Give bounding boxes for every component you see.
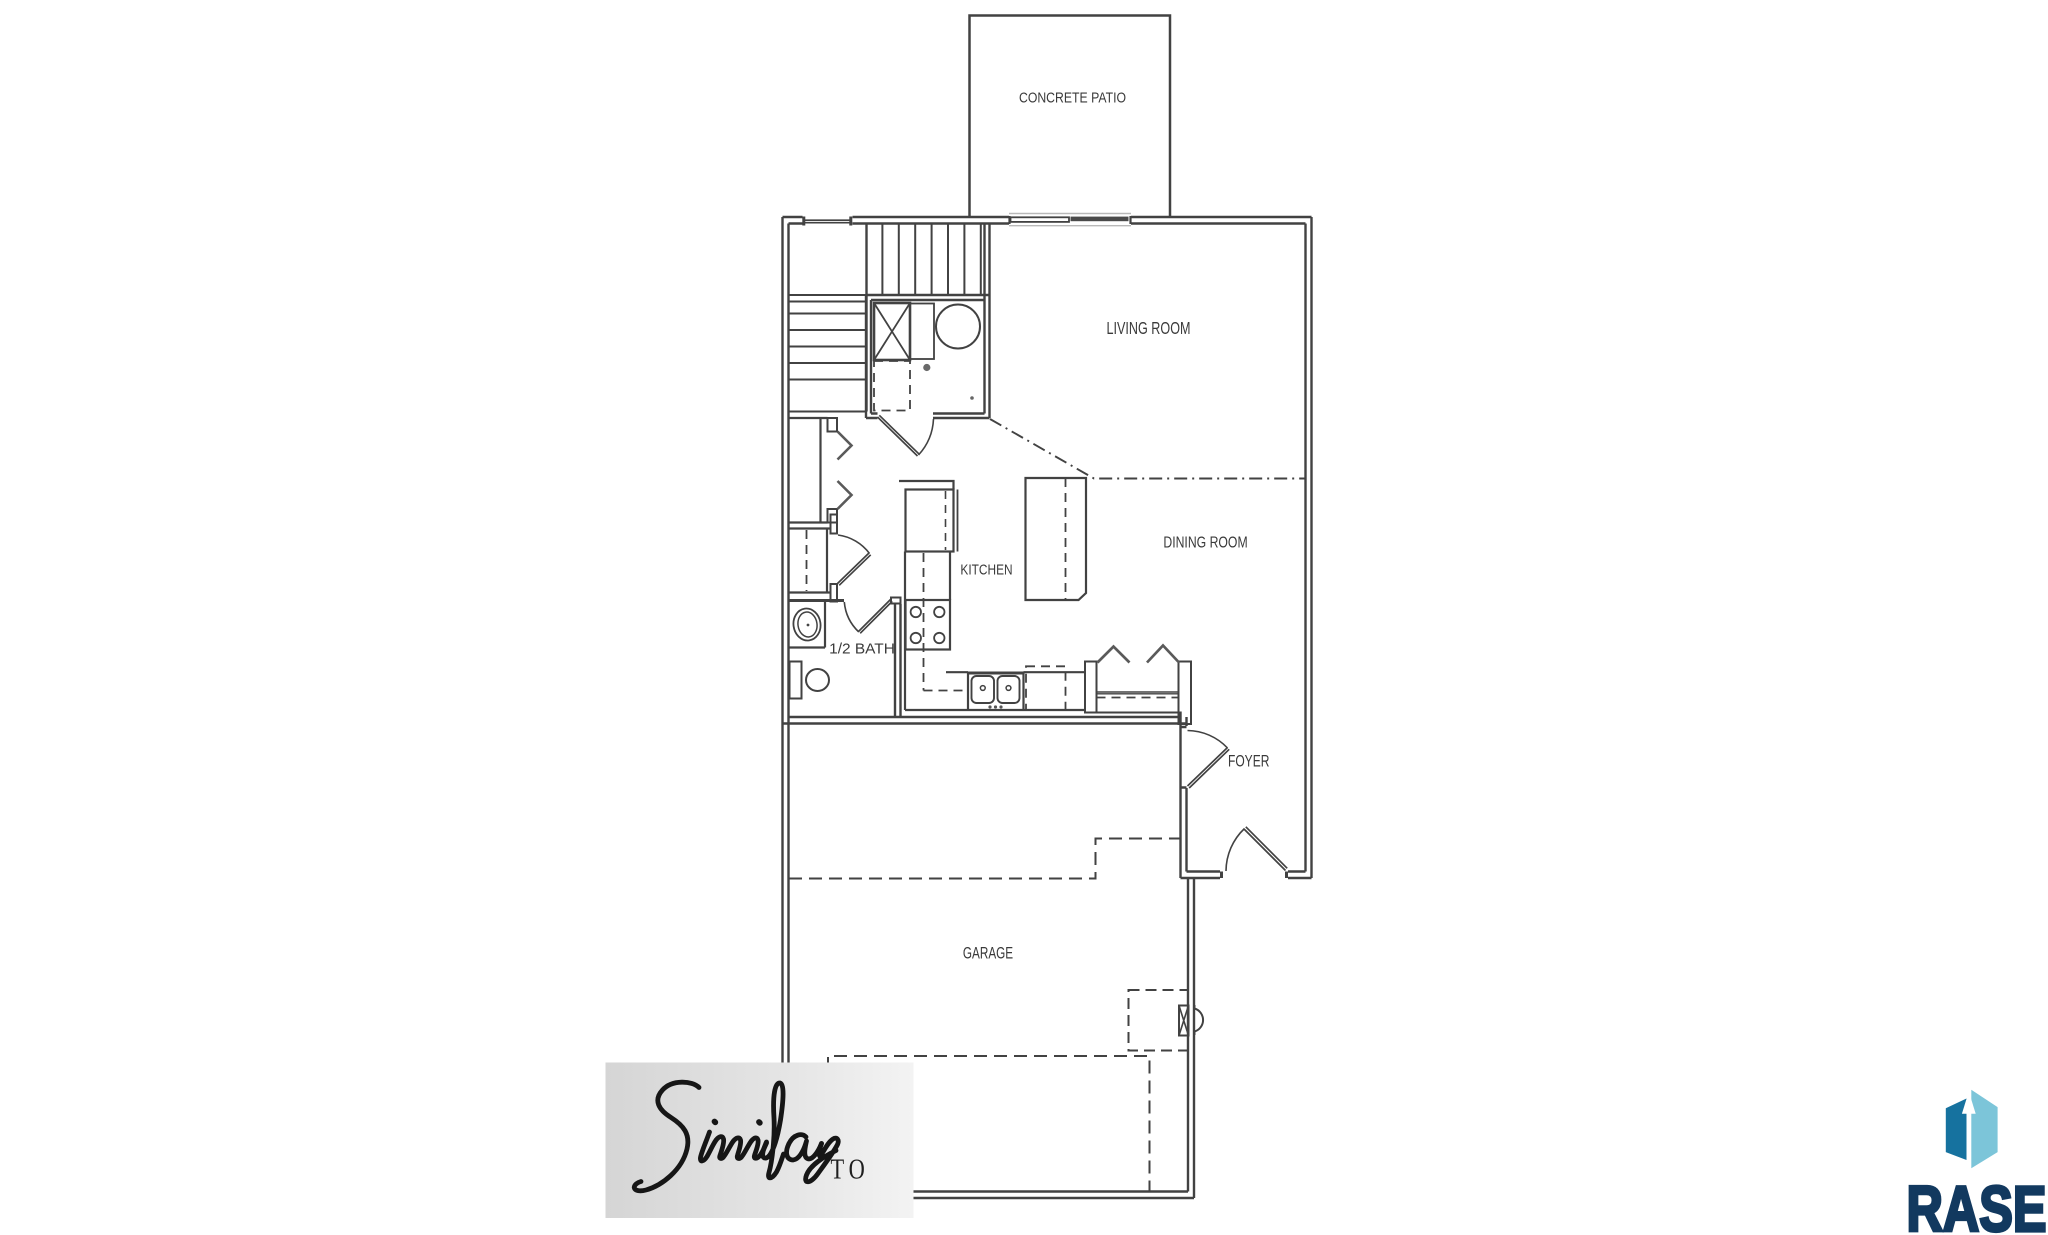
svg-text:CONCRETE PATIO: CONCRETE PATIO (1019, 89, 1126, 105)
svg-text:KITCHEN: KITCHEN (960, 561, 1012, 577)
svg-text:1/2 BATH: 1/2 BATH (829, 640, 895, 657)
svg-text:DINING ROOM: DINING ROOM (1163, 533, 1247, 551)
svg-text:FOYER: FOYER (1228, 753, 1269, 771)
svg-text:TO: TO (831, 1154, 870, 1185)
svg-text:GARAGE: GARAGE (963, 945, 1013, 964)
svg-text:RASE: RASE (1907, 1174, 2047, 1235)
svg-text:LIVING ROOM: LIVING ROOM (1107, 319, 1191, 339)
